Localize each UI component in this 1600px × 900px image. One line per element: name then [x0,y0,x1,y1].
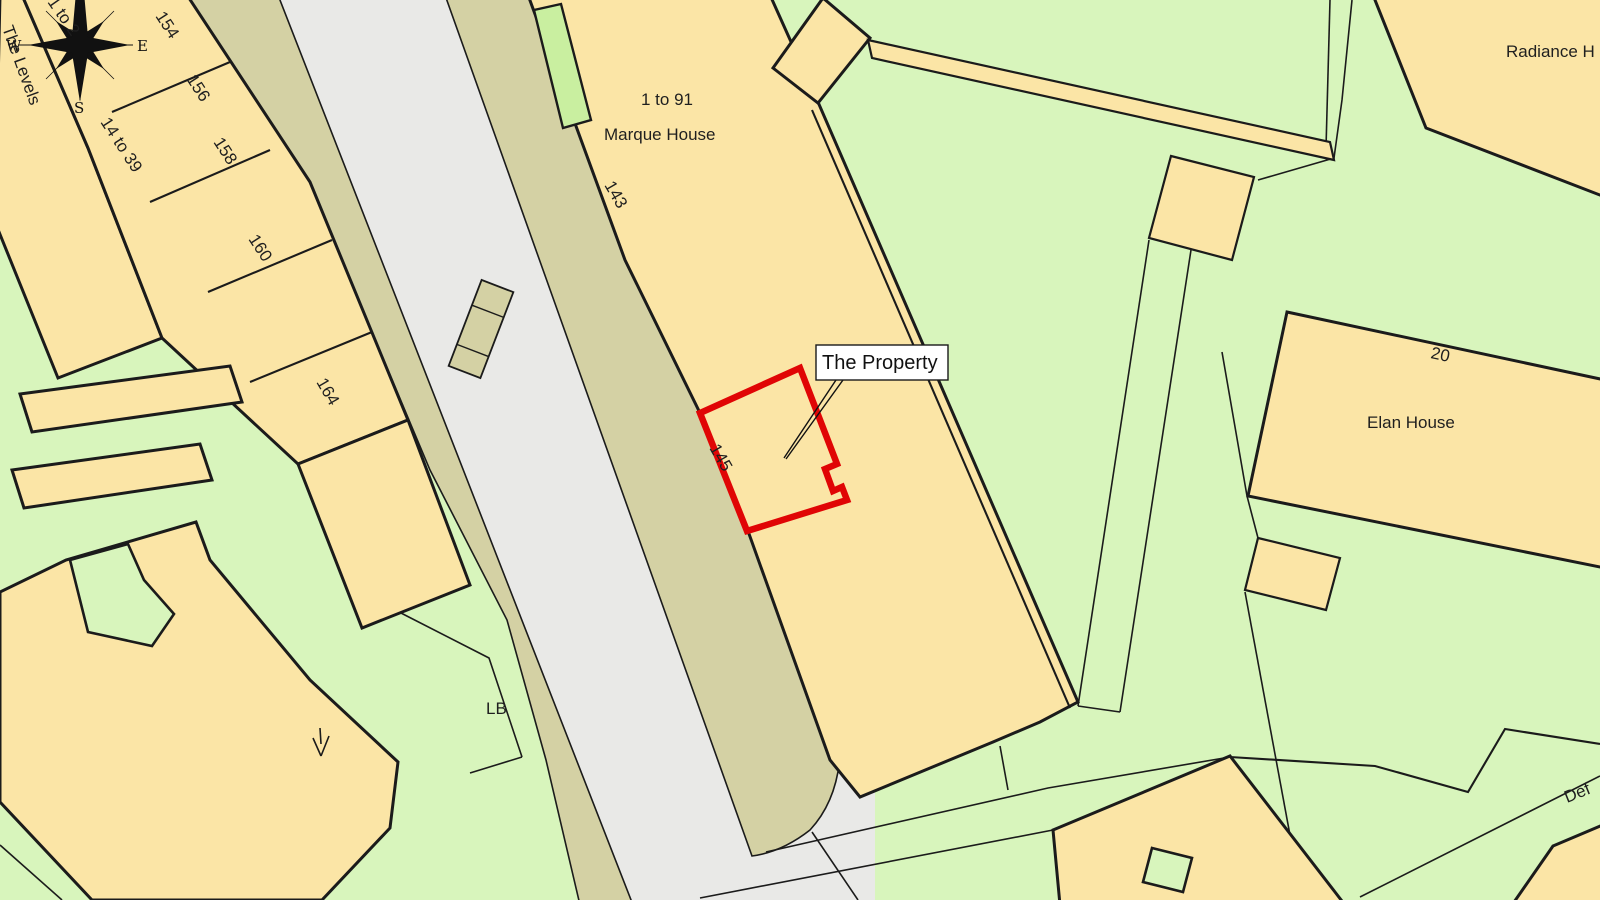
label-1-to-91: 1 to 91 [641,90,693,109]
compass-south-letter: S [74,99,84,117]
callout-label: The Property [822,352,938,374]
label-elan-house: Elan House [1367,413,1455,432]
compass-east-letter: E [137,37,148,55]
label-20: 20 [1429,343,1451,366]
map-canvas: W E S The Property The Levels 1 to 2 14 … [0,0,1600,900]
label-lb: LB [486,699,507,718]
label-marque-house: Marque House [604,125,716,144]
label-radiance-house: Radiance H [1506,42,1595,61]
